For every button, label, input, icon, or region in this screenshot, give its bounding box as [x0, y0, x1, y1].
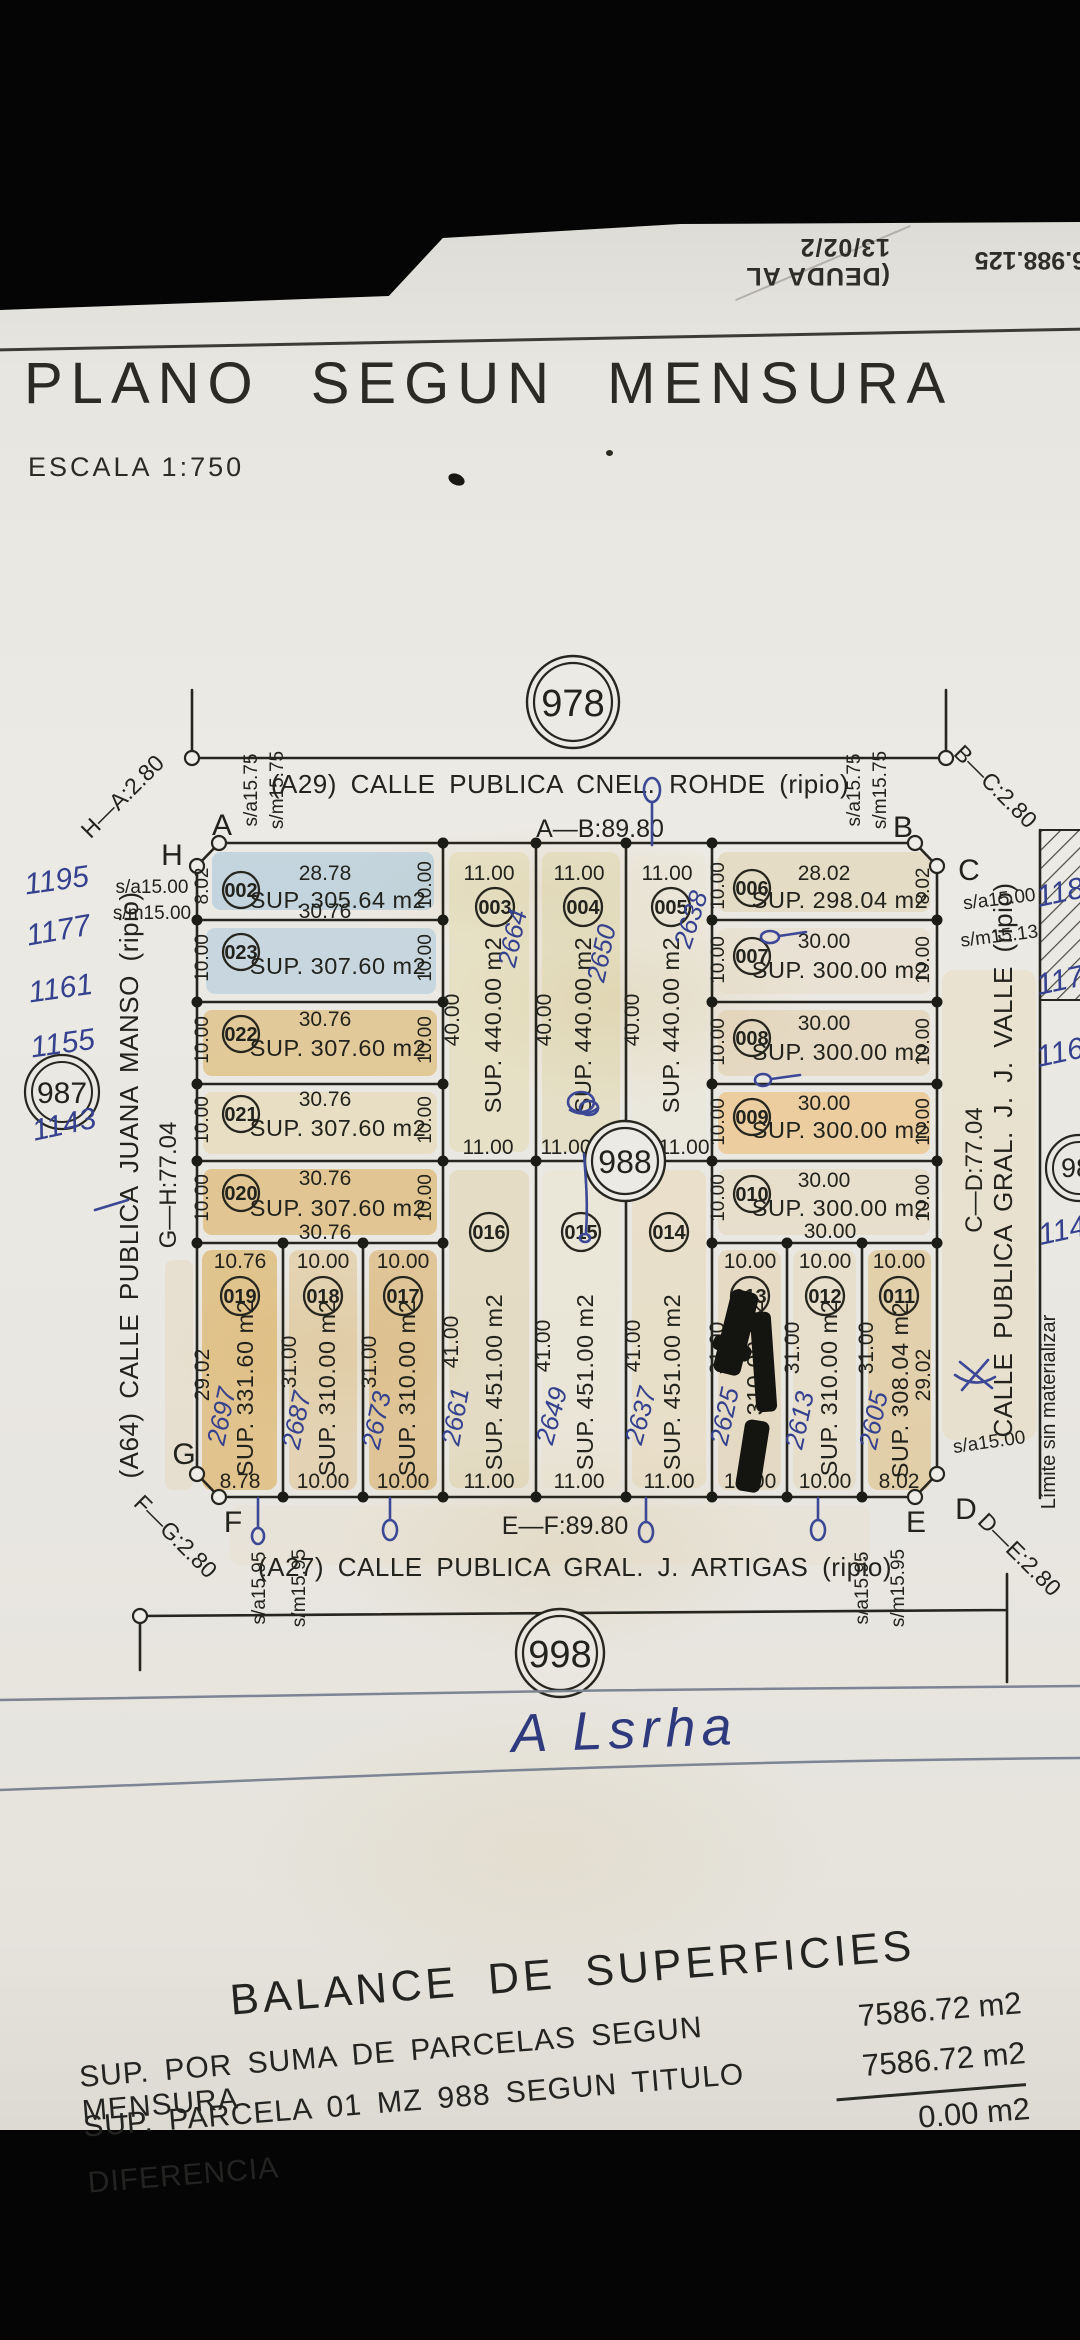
dim-label: 31.00 — [278, 1336, 301, 1389]
sup-label: SUP. 308.04 m2 — [887, 1302, 913, 1478]
handwritten-lot: 1195 — [22, 860, 91, 902]
dim-label: 10.00 — [192, 1016, 213, 1064]
dim-label: 10.00 — [913, 1098, 934, 1146]
parcel-id: 016 — [472, 1222, 505, 1244]
dim-label: 10.00 — [415, 861, 436, 909]
dim-label: 10.00 — [913, 936, 934, 984]
sup-label: SUP. 300.00 m2 — [752, 1117, 928, 1143]
street-dim-north: A—B:89.80 — [536, 815, 664, 843]
dim-label: 30.76 — [299, 1167, 352, 1190]
street-dim-south: E—F:89.80 — [502, 1512, 628, 1540]
street-name-east: CALLE PUBLICA GRAL. J. J. VALLE (ripio) — [988, 883, 1018, 1438]
sup-label: SUP. 307.60 m2 — [250, 1035, 426, 1061]
handwritten-lot: 114 — [1035, 1210, 1080, 1252]
dim-label: 31.00 — [781, 1322, 804, 1375]
sup-label: SUP. 307.60 m2 — [250, 953, 426, 979]
ochava-DE: D—E:2.80 — [973, 1508, 1066, 1601]
dim-label: 10.00 — [724, 1250, 777, 1273]
dim-label: 10.00 — [297, 1470, 350, 1493]
ruled-lines: A Lsrha — [0, 1686, 1080, 1790]
ochava-HA: H—A:2.80 — [76, 750, 169, 843]
dim-label: 11.00 — [464, 862, 515, 885]
dim-label: 10.76 — [214, 1250, 267, 1273]
dim-label: 30.00 — [798, 1012, 851, 1035]
dim-label: 28.78 — [299, 862, 352, 885]
upside-down-debt-note: (DEUDA AL 13/02/2 — [658, 232, 890, 290]
dim-label: 10.00 — [913, 1018, 934, 1066]
sup-label: SUP. 298.04 m2 — [752, 887, 928, 913]
sup-label: SUP. 440.00 m2 — [658, 937, 684, 1113]
handwritten-signature: A Lsrha — [507, 1696, 738, 1764]
sup-label: SUP. 307.60 m2 — [250, 1115, 426, 1141]
page-title: PLANO SEGUN MENSURA — [24, 350, 953, 417]
sup-label: SUP. 451.00 m2 — [659, 1294, 685, 1470]
dim-label: 11.00 — [554, 1470, 605, 1493]
street-name-west: (A64) CALLE PUBLICA JUANA MANSO (ripio) — [114, 892, 144, 1479]
dim-label: 10.00 — [708, 1018, 729, 1066]
block-number-center: 988 — [598, 1144, 651, 1180]
sup-label: SUP. 310.00 m2 — [314, 1300, 340, 1476]
dim-label: 10.00 — [192, 1096, 213, 1144]
street-name-south: (A27) CALLE PUBLICA GRAL. J. ARTIGAS (ri… — [258, 1552, 892, 1582]
dim-label: 10.00 — [799, 1250, 852, 1273]
dim-label: 31.00 — [855, 1322, 878, 1375]
dim-label: 30.76 — [299, 900, 352, 923]
sup-label: SUP. 310.00 m2 — [394, 1300, 420, 1476]
dim-label: 10.00 — [799, 1470, 852, 1493]
dim-label: 11.00 — [642, 862, 693, 885]
handwritten-lot: 1161 — [26, 968, 94, 1010]
dim-label: 11.00 — [644, 1470, 695, 1493]
dim-label: 11.00 — [463, 1136, 514, 1159]
corner-F: F — [224, 1506, 242, 1539]
street-dim-east: C—D:77.04 — [961, 1107, 988, 1232]
dim-label: 30.76 — [299, 1008, 352, 1031]
dim-label: 28.02 — [798, 862, 851, 885]
survey-drawing: 978 (A29) CALLE PUBLICA CNEL. ROHDE (rip… — [0, 640, 1080, 1800]
dim-label: 10.00 — [415, 934, 436, 982]
dim-label: 11.00 — [659, 1136, 710, 1159]
dim-label: 40.00 — [621, 994, 644, 1047]
dim-label: 8.78 — [220, 1470, 261, 1493]
dim-label: 10.00 — [415, 1016, 436, 1064]
setback-label: s/a15.75 — [241, 754, 262, 827]
sup-label: SUP. 331.60 m2 — [232, 1300, 258, 1476]
sup-label: SUP. 451.00 m2 — [481, 1294, 507, 1470]
dim-label: 10.00 — [873, 1250, 926, 1273]
dim-label: 10.00 — [377, 1470, 430, 1493]
dim-label: 10.00 — [708, 936, 729, 984]
dim-label: 30.76 — [299, 1088, 352, 1111]
block-number-north: 978 — [541, 683, 604, 725]
dim-label: 8.02 — [192, 868, 213, 905]
dim-label: 40.00 — [441, 994, 464, 1047]
dim-label: 10.00 — [708, 1174, 729, 1222]
corner-D: D — [955, 1493, 977, 1526]
scale-label: ESCALA 1:750 — [28, 452, 244, 483]
handwritten-lot: 1177 — [24, 909, 95, 953]
setback-label: s/m15.95 — [888, 1549, 909, 1627]
dim-label: 11.00 — [554, 862, 605, 885]
dim-label: 10.00 — [708, 1098, 729, 1146]
sup-label: SUP. 300.00 m2 — [752, 1039, 928, 1065]
corner-G: G — [172, 1438, 195, 1471]
dim-label: 10.00 — [192, 934, 213, 982]
street-name-north: (A29) CALLE PUBLICA CNEL. ROHDE (ripio) — [271, 769, 849, 799]
dim-label: 40.00 — [533, 994, 556, 1047]
ink-dot — [606, 450, 613, 456]
sup-label: SUP. 451.00 m2 — [572, 1294, 598, 1470]
dim-label: 30.00 — [798, 930, 851, 953]
upside-down-file-number: 6.988.125 — [950, 245, 1080, 274]
setback-label: s/m15.00 — [113, 903, 191, 924]
dim-label: 8.02 — [879, 1470, 920, 1493]
block-978: 978 — [185, 656, 953, 765]
parcel-id: 014 — [652, 1222, 686, 1244]
street-dim-west: G—H:77.04 — [155, 1122, 182, 1249]
sup-label: SUP. 307.60 m2 — [250, 1195, 426, 1221]
dim-label: 11.00 — [464, 1470, 515, 1493]
setback-label: s/a15.00 — [116, 877, 189, 898]
dim-label: 30.00 — [798, 1169, 851, 1192]
dim-label: 41.00 — [440, 1316, 463, 1369]
corner-C: C — [958, 854, 980, 887]
dim-label: 30.76 — [299, 1221, 352, 1244]
photographed-survey-plan: { "photo": { "debt_note": "(DEUDA AL 13/… — [0, 0, 1080, 2340]
dim-label: 41.00 — [532, 1320, 555, 1373]
setback-label: s/m15.75 — [267, 751, 288, 829]
dim-label: 10.00 — [708, 862, 729, 910]
dim-label: 10.00 — [297, 1250, 350, 1273]
dim-label: 10.00 — [377, 1250, 430, 1273]
dim-label: 10.00 — [415, 1096, 436, 1144]
sup-label: SUP. 300.00 m2 — [752, 1195, 928, 1221]
setback-label: s/a15.95 — [852, 1552, 873, 1625]
ochava-FG: F—G:2.80 — [129, 1490, 222, 1583]
block-988: 988 — [585, 1121, 665, 1201]
dim-label: 30.00 — [798, 1092, 851, 1115]
block-number-east: 98 — [1061, 1153, 1080, 1183]
setback-label: s/a15.95 — [249, 1552, 270, 1625]
dim-label: 31.00 — [358, 1336, 381, 1389]
dim-label: 30.00 — [804, 1220, 857, 1243]
dim-label: 41.00 — [622, 1320, 645, 1373]
handwritten-lot: 1155 — [28, 1023, 97, 1065]
dim-label: 29.02 — [912, 1349, 935, 1402]
ochava-BC: B—C:2.80 — [949, 740, 1042, 833]
block-number-south: 998 — [528, 1634, 591, 1676]
setback-label: s/m15.75 — [870, 751, 891, 829]
sup-label: SUP. 310.00 m2 — [816, 1300, 842, 1476]
setback-label: s/a15.75 — [844, 754, 865, 827]
dim-label: 10.00 — [415, 1174, 436, 1222]
dim-label: 10.00 — [192, 1174, 213, 1222]
dim-label: 8.02 — [913, 868, 934, 905]
dim-label: 10.00 — [913, 1174, 934, 1222]
parcel-id: 004 — [566, 897, 600, 919]
sup-label: SUP. 300.00 m2 — [752, 957, 928, 983]
corner-H: H — [161, 839, 183, 872]
limit-note: Límite sin materializar — [1038, 1314, 1060, 1509]
corner-E: E — [906, 1506, 926, 1539]
